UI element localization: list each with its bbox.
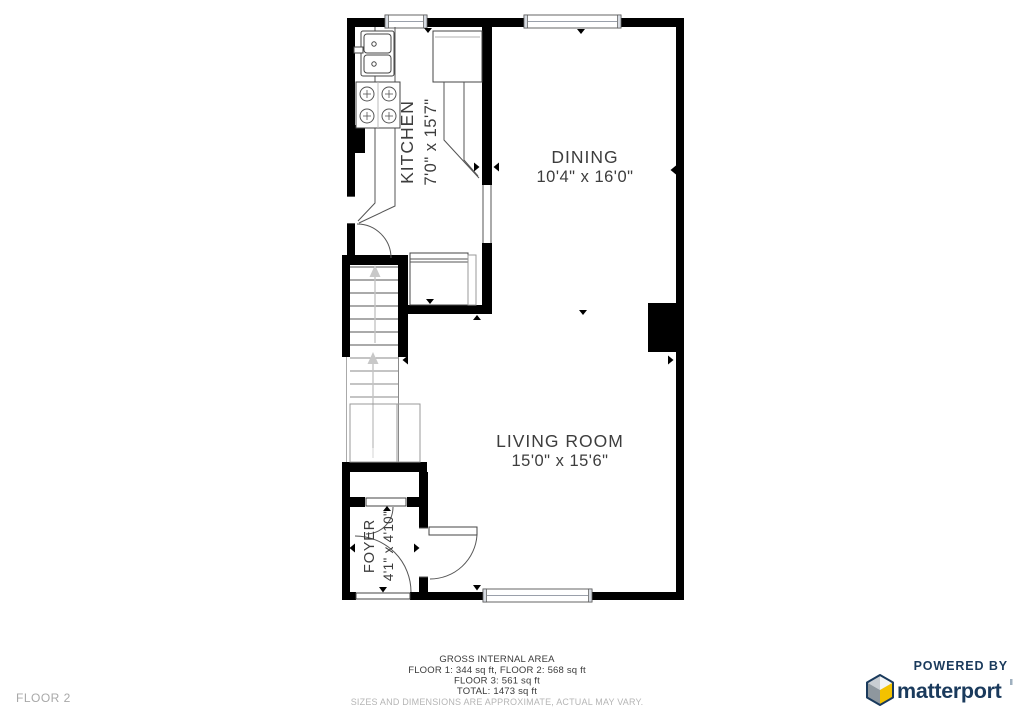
footer: GROSS INTERNAL AREA FLOOR 1: 344 sq ft, … <box>16 654 643 707</box>
stove <box>356 82 400 128</box>
powered-by-label: POWERED BY <box>914 659 1008 673</box>
room-dims-foyer: 4'1" x 4'10" <box>381 511 396 581</box>
window <box>483 589 592 602</box>
floorplan-page: KITCHEN 7'0" x 15'7" DINING 10'4" x 16'0… <box>0 0 1024 724</box>
counter <box>444 82 479 178</box>
room-label-living-room: LIVING ROOM <box>496 431 624 451</box>
stair-treads <box>350 267 398 345</box>
gross-area-title: GROSS INTERNAL AREA <box>439 654 555 665</box>
sink <box>354 31 394 76</box>
door-leaf <box>429 527 477 535</box>
room-dims-dining: 10'4" x 16'0" <box>537 168 634 186</box>
door-threshold <box>366 498 406 506</box>
trademark-tick <box>1010 679 1013 685</box>
stair-direction-arrow <box>368 265 381 458</box>
gross-area-line2: FLOOR 3: 561 sq ft <box>454 676 540 687</box>
room-label-kitchen: KITCHEN <box>397 100 417 184</box>
floor-label: FLOOR 2 <box>16 691 71 705</box>
matterport-wordmark: matterport <box>897 679 1002 703</box>
door-threshold <box>356 593 410 599</box>
floorplan-canvas: KITCHEN 7'0" x 15'7" DINING 10'4" x 16'0… <box>0 0 1024 724</box>
gross-area-line3: TOTAL: 1473 sq ft <box>457 686 537 697</box>
room-label-dining: DINING <box>551 147 618 167</box>
window <box>524 15 621 28</box>
gross-area-line1: FLOOR 1: 344 sq ft, FLOOR 2: 568 sq ft <box>408 665 586 676</box>
fridge <box>433 31 482 82</box>
window <box>385 15 427 28</box>
closet <box>410 253 476 305</box>
branding: POWERED BY matterport <box>867 659 1013 705</box>
room-label-foyer: FOYER <box>362 519 378 573</box>
door-arc <box>430 535 477 579</box>
disclaimer: SIZES AND DIMENSIONS ARE APPROXIMATE, AC… <box>351 697 644 707</box>
room-dims-living-room: 15'0" x 15'6" <box>512 452 609 470</box>
matterport-cube-icon <box>867 675 893 705</box>
stair-closet <box>350 404 420 462</box>
fireplace <box>648 303 678 352</box>
door-arc <box>357 224 391 258</box>
counter <box>464 82 478 176</box>
room-dims-kitchen: 7'0" x 15'7" <box>422 98 440 185</box>
